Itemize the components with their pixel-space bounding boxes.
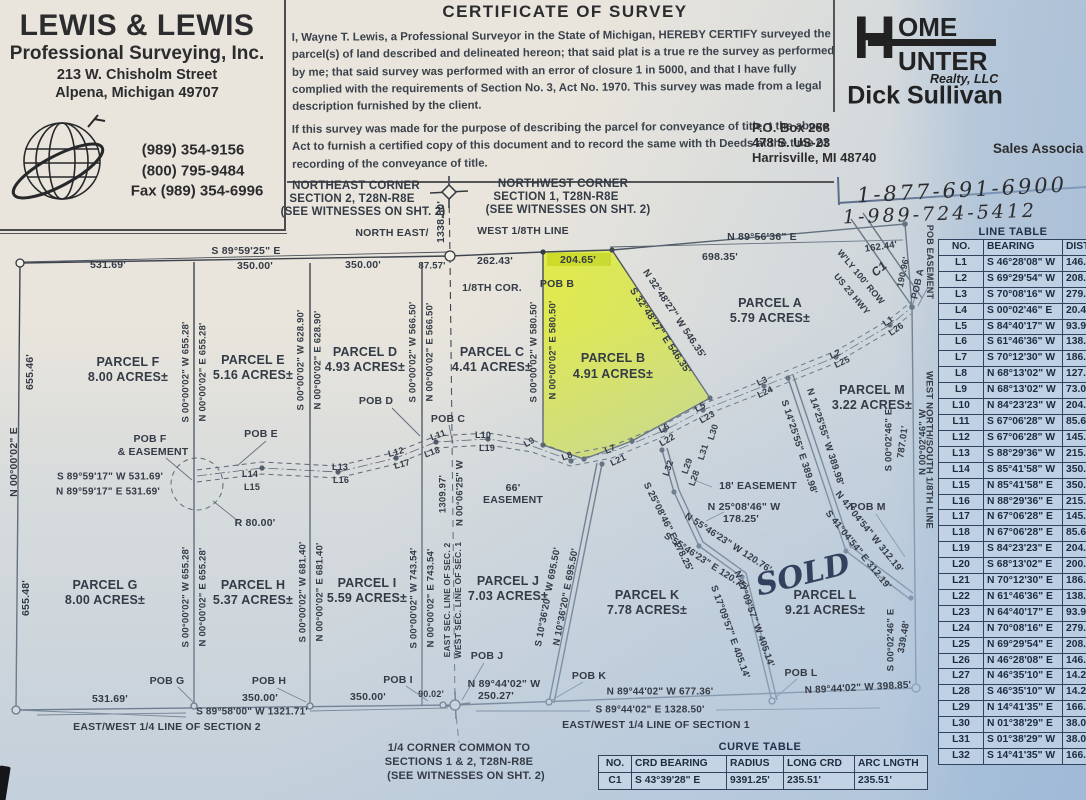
table-cell: 14.28 bbox=[1063, 685, 1086, 701]
map-label: POB C bbox=[431, 413, 465, 425]
table-cell: 279. bbox=[1063, 287, 1086, 303]
map-label: L19 bbox=[479, 443, 495, 453]
table-cell: S 00°02'46" E bbox=[984, 303, 1063, 319]
map-label: N 89°44'02" W bbox=[468, 678, 541, 690]
table-row: L31S 01°38'29" W38.05 bbox=[939, 733, 1086, 749]
table-cell: 93.9 bbox=[1063, 319, 1086, 335]
map-label: R 80.00' bbox=[235, 517, 276, 529]
table-cell: L14 bbox=[939, 462, 984, 478]
table-cell: 146.5 bbox=[1063, 653, 1086, 669]
table-row: L27N 46°35'10" E14.29 bbox=[939, 669, 1086, 685]
map-label: NORTHEAST CORNER bbox=[292, 180, 420, 192]
map-label: S 89°44'02" E 1328.50' bbox=[595, 705, 704, 716]
table-cell: L11 bbox=[939, 414, 984, 430]
table-cell: L32 bbox=[939, 749, 984, 765]
table-cell: 279.5 bbox=[1063, 621, 1086, 637]
company-address2: Alpena, Michigan 49707 bbox=[55, 85, 219, 101]
map-label: 4.41 ACRES± bbox=[452, 360, 532, 374]
table-cell: L24 bbox=[939, 621, 984, 637]
table-cell: 93.9 bbox=[1063, 605, 1086, 621]
table-cell: S 84°40'17" W bbox=[984, 319, 1063, 335]
map-label: PARCEL A bbox=[738, 296, 802, 310]
company-phone1: (989) 354-9156 bbox=[142, 142, 245, 159]
map-label: 9.21 ACRES± bbox=[785, 603, 865, 617]
map-label: 4.93 ACRES± bbox=[325, 360, 405, 374]
table-cell: L5 bbox=[939, 319, 984, 335]
table-cell: 38.05 bbox=[1063, 733, 1086, 749]
map-label: S 00°00'02" W 580.50' bbox=[529, 302, 540, 403]
table-cell: 235.51' bbox=[855, 773, 928, 790]
table-cell: 186. bbox=[1063, 351, 1086, 367]
map-label: N 00°00'02" E bbox=[8, 427, 20, 497]
table-cell: 208. bbox=[1063, 271, 1086, 287]
table-cell: S 46°35'10" W bbox=[984, 685, 1063, 701]
map-label: 90.02' bbox=[418, 689, 444, 699]
table-row: L6S 61°46'36" W138. bbox=[939, 335, 1086, 351]
map-label: POB EASEMENT bbox=[925, 225, 935, 299]
table-cell: 200. bbox=[1063, 558, 1086, 574]
company-address1: 213 W. Chisholm Street bbox=[57, 67, 217, 83]
map-label: PARCEL M bbox=[839, 383, 905, 397]
table-row: L22N 61°46'36" E138.1 bbox=[939, 589, 1086, 605]
map-label: NORTH EAST/ bbox=[355, 227, 428, 239]
table-header-cell: NO. bbox=[599, 756, 632, 773]
map-label: N 00°00'02" E 566.50' bbox=[425, 303, 436, 402]
table-cell: S 61°46'36" W bbox=[984, 335, 1063, 351]
homehunter-ome: OME bbox=[898, 12, 957, 43]
table-cell: 208.7 bbox=[1063, 637, 1086, 653]
table-cell: L30 bbox=[939, 717, 984, 733]
table-cell: 204. bbox=[1063, 542, 1086, 558]
table-cell: L13 bbox=[939, 446, 984, 462]
map-label: EAST/WEST 1/4 LINE OF SECTION 1 bbox=[562, 719, 750, 731]
map-label: S 00°00'02" W 628.90' bbox=[296, 310, 307, 411]
map-label: N 89°59'17" E 531.69' bbox=[56, 487, 160, 498]
map-label: PARCEL B bbox=[581, 351, 645, 365]
table-cell: L12 bbox=[939, 430, 984, 446]
table-cell: 14.29 bbox=[1063, 669, 1086, 685]
table-cell: 204. bbox=[1063, 399, 1086, 415]
map-label: S 00°00'02" W 655.28' bbox=[181, 547, 192, 648]
map-label: S 00°00'02" W 681.40' bbox=[298, 542, 309, 643]
table-cell: 186. bbox=[1063, 574, 1086, 590]
map-label: N 89°44'02" W 677.36' bbox=[607, 687, 714, 698]
table-cell: L26 bbox=[939, 653, 984, 669]
table-cell: L31 bbox=[939, 733, 984, 749]
map-label: N 00°00'02" E 655.28' bbox=[198, 548, 209, 647]
table-row: L24N 70°08'16" E279.5 bbox=[939, 621, 1086, 637]
table-row: L18N 67°06'28" E85.6 bbox=[939, 526, 1086, 542]
map-label: EAST SEC. LINE OF SEC. 2 bbox=[442, 543, 452, 658]
realtor-address-2: 478 S. US-23 bbox=[752, 135, 830, 150]
map-label: PARCEL E bbox=[221, 353, 285, 367]
table-row: L25N 69°29'54" E208.7 bbox=[939, 637, 1086, 653]
map-label: L15 bbox=[244, 482, 260, 492]
map-label: POB H bbox=[252, 675, 286, 687]
map-label: N 00°00'02" E 743.54' bbox=[426, 549, 437, 648]
map-label: PARCEL H bbox=[221, 578, 285, 592]
table-row: L10N 84°23'23" W204. bbox=[939, 399, 1086, 415]
map-label: L13 bbox=[332, 462, 348, 472]
map-label: PARCEL C bbox=[460, 345, 524, 359]
map-label: PARCEL F bbox=[97, 355, 160, 369]
map-label: 8.00 ACRES± bbox=[88, 370, 168, 384]
map-label: (SEE WITNESSES ON SHT. 2) bbox=[486, 204, 651, 216]
table-cell: 73.0 bbox=[1063, 383, 1086, 399]
table-row: L15N 85°41'58" E350. bbox=[939, 478, 1086, 494]
map-label: S 00°02'46" E bbox=[884, 409, 895, 472]
table-row: L5S 84°40'17" W93.9 bbox=[939, 319, 1086, 335]
map-label: 1309.97' bbox=[438, 475, 449, 513]
map-label: 4.91 ACRES± bbox=[573, 367, 653, 381]
map-label: 698.35' bbox=[702, 251, 738, 263]
map-label: 3.22 ACRES± bbox=[832, 398, 912, 412]
table-cell: L7 bbox=[939, 351, 984, 367]
map-label: L14 bbox=[242, 469, 258, 479]
globe-logo-icon bbox=[8, 105, 113, 223]
map-label: (SEE WITNESSES ON SHT. 2) bbox=[387, 770, 545, 782]
homehunter-h: H bbox=[853, 8, 896, 68]
table-cell: L4 bbox=[939, 303, 984, 319]
map-label: S 00°00'02" W 743.54' bbox=[409, 548, 420, 649]
map-label: 178.25' bbox=[723, 513, 759, 525]
map-label: 350.00' bbox=[242, 692, 278, 704]
table-cell: S 01°38'29" W bbox=[984, 733, 1063, 749]
letterhead-divider bbox=[0, 233, 287, 234]
table-row: L20S 68°13'02" E200. bbox=[939, 558, 1086, 574]
table-cell: L16 bbox=[939, 494, 984, 510]
map-label: PARCEL K bbox=[615, 588, 679, 602]
table-cell: N 46°35'10" E bbox=[984, 669, 1063, 685]
table-cell: 145. bbox=[1063, 430, 1086, 446]
table-cell: N 14°41'35" E bbox=[984, 701, 1063, 717]
map-label: 66' bbox=[506, 482, 521, 494]
curve-table: NO.CRD BEARINGRADIUSLONG CRDARC LNGTHC1S… bbox=[598, 755, 928, 790]
table-cell: C1 bbox=[599, 773, 632, 790]
map-label: S 00°00'02" W 655.28' bbox=[181, 322, 192, 423]
map-label: POB F bbox=[133, 433, 166, 445]
table-row: L9N 68°13'02" W73.0 bbox=[939, 383, 1086, 399]
table-cell: L3 bbox=[939, 287, 984, 303]
map-label: POB G bbox=[150, 675, 185, 687]
table-row: L1S 46°28'08" W146. bbox=[939, 255, 1086, 271]
map-label: PARCEL D bbox=[333, 345, 397, 359]
map-label: 531.69' bbox=[90, 259, 126, 271]
table-header-cell: NO. bbox=[939, 240, 984, 256]
map-label: SECTION 1, T28N-R8E bbox=[493, 191, 618, 203]
table-cell: N 67°06'28" E bbox=[984, 510, 1063, 526]
map-label: POB L bbox=[784, 667, 817, 679]
table-row: L23N 64°40'17" E93.9 bbox=[939, 605, 1086, 621]
table-cell: 235.51' bbox=[784, 773, 855, 790]
table-cell: 85.6 bbox=[1063, 414, 1086, 430]
table-cell: N 85°41'58" E bbox=[984, 478, 1063, 494]
map-label: POB M bbox=[850, 501, 885, 513]
table-row: L2S 69°29'54" W208. bbox=[939, 271, 1086, 287]
certificate-title: CERTIFICATE OF SURVEY bbox=[442, 2, 687, 22]
table-header-row: NO.CRD BEARINGRADIUSLONG CRDARC LNGTH bbox=[599, 756, 928, 773]
map-label: PARCEL J bbox=[477, 574, 539, 588]
table-cell: L28 bbox=[939, 685, 984, 701]
map-label: 350.00' bbox=[345, 259, 381, 271]
table-header-cell: LONG CRD bbox=[784, 756, 855, 773]
agent-name: Dick Sullivan bbox=[847, 82, 1003, 111]
map-label: WEST NORTH/SOUTH 1/8TH LINE bbox=[924, 371, 935, 529]
table-row: L7S 70°12'30" W186. bbox=[939, 351, 1086, 367]
map-label: 5.59 ACRES± bbox=[327, 591, 407, 605]
map-label: S 89°58'00" W 1321.71' bbox=[196, 707, 308, 718]
table-cell: S 67°06'28" W bbox=[984, 430, 1063, 446]
company-name: LEWIS & LEWIS bbox=[20, 9, 255, 43]
table-cell: 166. bbox=[1063, 749, 1086, 765]
line-table-title: LINE TABLE bbox=[979, 226, 1048, 238]
table-row: L32S 14°41'35" W166. bbox=[939, 749, 1086, 765]
map-label: PARCEL I bbox=[338, 576, 397, 590]
map-label: 1338.80' bbox=[435, 201, 447, 243]
table-cell: L17 bbox=[939, 510, 984, 526]
table-header-row: NO.BEARINGDIST bbox=[939, 240, 1086, 256]
table-cell: N 70°08'16" E bbox=[984, 621, 1063, 637]
realtor-address-3: Harrisville, MI 48740 bbox=[752, 150, 876, 165]
table-cell: L23 bbox=[939, 605, 984, 621]
table-row: C1S 43°39'28" E9391.25'235.51'235.51' bbox=[599, 773, 928, 790]
map-label: L16 bbox=[333, 475, 349, 485]
table-row: L19S 84°23'23" E204. bbox=[939, 542, 1086, 558]
table-cell: 85.6 bbox=[1063, 526, 1086, 542]
table-cell: S 85°41'58" W bbox=[984, 462, 1063, 478]
map-label: EASEMENT bbox=[483, 494, 543, 506]
map-label: POB J bbox=[471, 650, 504, 662]
map-label: S 00°00'02" W 566.50' bbox=[408, 302, 419, 403]
table-cell: 350. bbox=[1063, 462, 1086, 478]
table-row: L14S 85°41'58" W350. bbox=[939, 462, 1086, 478]
table-cell: N 46°28'08" E bbox=[984, 653, 1063, 669]
table-cell: 350. bbox=[1063, 478, 1086, 494]
table-cell: N 61°46'36" E bbox=[984, 589, 1063, 605]
table-cell: L29 bbox=[939, 701, 984, 717]
company-fax: Fax (989) 354-6996 bbox=[131, 183, 264, 200]
map-label: N 00°06'25" W bbox=[455, 460, 466, 526]
map-label: S 89°59'25" E bbox=[211, 245, 280, 257]
table-cell: 146. bbox=[1063, 255, 1086, 271]
table-cell: L19 bbox=[939, 542, 984, 558]
map-label: 1/4 CORNER COMMON TO bbox=[388, 742, 531, 754]
map-label: 5.79 ACRES± bbox=[730, 311, 810, 325]
table-cell: S 84°23'23" E bbox=[984, 542, 1063, 558]
table-row: L29N 14°41'35" E166.3 bbox=[939, 701, 1086, 717]
table-cell: N 84°23'23" W bbox=[984, 399, 1063, 415]
table-row: L28S 46°35'10" W14.28 bbox=[939, 685, 1086, 701]
table-cell: L27 bbox=[939, 669, 984, 685]
table-cell: L18 bbox=[939, 526, 984, 542]
table-cell: 38.05 bbox=[1063, 717, 1086, 733]
table-cell: L10 bbox=[939, 399, 984, 415]
map-label: 1/8TH COR. bbox=[462, 282, 522, 294]
map-label: SECTION 2, T28N-R8E bbox=[289, 193, 414, 205]
map-label: POB D bbox=[359, 395, 393, 407]
certificate-paragraph-1: I, Wayne T. Lewis, a Professional Survey… bbox=[292, 26, 845, 116]
table-cell: N 64°40'17" E bbox=[984, 605, 1063, 621]
easement-edges-dashed bbox=[171, 302, 911, 510]
map-label: EAST/WEST 1/4 LINE OF SECTION 2 bbox=[73, 721, 261, 733]
table-cell: L9 bbox=[939, 383, 984, 399]
map-label: N 00°00'02" E 628.90' bbox=[313, 311, 324, 410]
map-label: 350.00' bbox=[237, 260, 273, 272]
table-cell: N 69°29'54" E bbox=[984, 637, 1063, 653]
map-label: N 89°56'36" E bbox=[727, 231, 797, 243]
map-label: PARCEL G bbox=[72, 578, 137, 592]
table-cell: S 70°08'16" W bbox=[984, 287, 1063, 303]
map-label: POB E bbox=[244, 428, 278, 440]
table-row: L4S 00°02'46" E20.4 bbox=[939, 303, 1086, 319]
map-label: SECTIONS 1 & 2, T28N-R8E bbox=[385, 756, 533, 768]
map-label: 5.16 ACRES± bbox=[213, 368, 293, 382]
map-label: 531.69' bbox=[92, 693, 128, 705]
table-cell: N 70°12'30" E bbox=[984, 574, 1063, 590]
map-label: POB K bbox=[572, 670, 606, 682]
map-label: 7.78 ACRES± bbox=[607, 603, 687, 617]
table-cell: S 46°28'08" W bbox=[984, 255, 1063, 271]
table-header-cell: CRD BEARING bbox=[632, 756, 727, 773]
table-cell: L20 bbox=[939, 558, 984, 574]
table-cell: L22 bbox=[939, 589, 984, 605]
table-cell: N 68°13'02" W bbox=[984, 367, 1063, 383]
table-cell: N 88°29'36" E bbox=[984, 494, 1063, 510]
map-label: N 00°00'02" E 681.40' bbox=[315, 543, 326, 642]
table-cell: 9391.25' bbox=[727, 773, 784, 790]
table-cell: L15 bbox=[939, 478, 984, 494]
table-cell: S 69°29'54" W bbox=[984, 271, 1063, 287]
map-label: 204.65' bbox=[560, 254, 596, 266]
table-cell: 215. bbox=[1063, 494, 1086, 510]
table-cell: S 14°41'35" W bbox=[984, 749, 1063, 765]
map-label: & EASEMENT bbox=[118, 446, 189, 458]
line-table: NO.BEARINGDISTL1S 46°28'08" W146.L2S 69°… bbox=[938, 239, 1086, 765]
table-row: L16N 88°29'36" E215. bbox=[939, 494, 1086, 510]
company-subtitle: Professional Surveying, Inc. bbox=[10, 43, 264, 65]
table-header-cell: DIST bbox=[1063, 240, 1086, 256]
realtor-address-1: P.O. Box 268 bbox=[752, 120, 830, 135]
table-cell: N 68°13'02" W bbox=[984, 383, 1063, 399]
map-label: N 25°08'46" W bbox=[708, 501, 781, 513]
table-row: L21N 70°12'30" E186. bbox=[939, 574, 1086, 590]
map-label: S 00°02'46" E bbox=[886, 609, 897, 672]
table-header-cell: ARC LNGTH bbox=[855, 756, 928, 773]
realtor-role: Sales Associa bbox=[993, 141, 1083, 156]
table-row: L13S 88°29'36" W215. bbox=[939, 446, 1086, 462]
map-label: L10 bbox=[475, 430, 491, 440]
table-cell: S 68°13'02" E bbox=[984, 558, 1063, 574]
table-cell: 20.4 bbox=[1063, 303, 1086, 319]
table-header-cell: BEARING bbox=[984, 240, 1063, 256]
table-cell: S 70°12'30" W bbox=[984, 351, 1063, 367]
table-cell: L2 bbox=[939, 271, 984, 287]
map-label: 350.00' bbox=[350, 691, 386, 703]
table-cell: S 67°06'28" W bbox=[984, 414, 1063, 430]
table-row: L3S 70°08'16" W279. bbox=[939, 287, 1086, 303]
map-label: 5.37 ACRES± bbox=[213, 593, 293, 607]
table-cell: N 67°06'28" E bbox=[984, 526, 1063, 542]
table-cell: L21 bbox=[939, 574, 984, 590]
table-cell: L25 bbox=[939, 637, 984, 653]
table-row: L11S 67°06'28" W85.6 bbox=[939, 414, 1086, 430]
table-cell: S 88°29'36" W bbox=[984, 446, 1063, 462]
company-phone2: (800) 795-9484 bbox=[142, 163, 245, 180]
table-cell: L1 bbox=[939, 255, 984, 271]
table-cell: 138. bbox=[1063, 335, 1086, 351]
map-label: N 00°00'02" E 580.50' bbox=[548, 301, 559, 400]
map-label: WEST 1/8TH LINE bbox=[477, 225, 569, 237]
map-label: 262.43' bbox=[477, 255, 513, 267]
table-header-cell: RADIUS bbox=[727, 756, 784, 773]
table-cell: 138.1 bbox=[1063, 589, 1086, 605]
map-label: NORTHWEST CORNER bbox=[498, 178, 628, 190]
table-cell: L8 bbox=[939, 367, 984, 383]
map-label: 18' EASEMENT bbox=[719, 480, 797, 492]
table-cell: N 01°38'29" E bbox=[984, 717, 1063, 733]
table-row: L17N 67°06'28" E145. bbox=[939, 510, 1086, 526]
table-cell: S 43°39'28" E bbox=[632, 773, 727, 790]
table-cell: 166.3 bbox=[1063, 701, 1086, 717]
table-cell: L6 bbox=[939, 335, 984, 351]
map-label: WEST SEC. LINE OF SEC. 1 bbox=[453, 542, 463, 659]
map-label: POB B bbox=[540, 278, 574, 290]
table-cell: 145. bbox=[1063, 510, 1086, 526]
table-row: L8N 68°13'02" W127. bbox=[939, 367, 1086, 383]
map-label: 87.57' bbox=[418, 261, 445, 272]
table-cell: 215. bbox=[1063, 446, 1086, 462]
curve-table-title: CURVE TABLE bbox=[719, 741, 802, 753]
map-label: 655.48' bbox=[20, 580, 32, 616]
map-label: 250.27' bbox=[478, 690, 514, 702]
survey-document-page: LEWIS & LEWIS Professional Surveying, In… bbox=[0, 0, 1086, 800]
map-label: S 89°59'17" W 531.69' bbox=[57, 472, 163, 483]
map-label: POB I bbox=[383, 674, 413, 686]
table-row: L26N 46°28'08" E146.5 bbox=[939, 653, 1086, 669]
table-row: L12S 67°06'28" W145. bbox=[939, 430, 1086, 446]
map-label: 8.00 ACRES± bbox=[65, 593, 145, 607]
table-row: L30N 01°38'29" E38.05 bbox=[939, 717, 1086, 733]
map-label: 655.46' bbox=[24, 354, 36, 390]
map-label: (SEE WITNESSES ON SHT. 2) bbox=[281, 206, 446, 218]
map-label: 7.03 ACRES± bbox=[468, 589, 548, 603]
map-label: N 00°00'02" E 655.28' bbox=[198, 323, 209, 422]
table-cell: 127. bbox=[1063, 367, 1086, 383]
